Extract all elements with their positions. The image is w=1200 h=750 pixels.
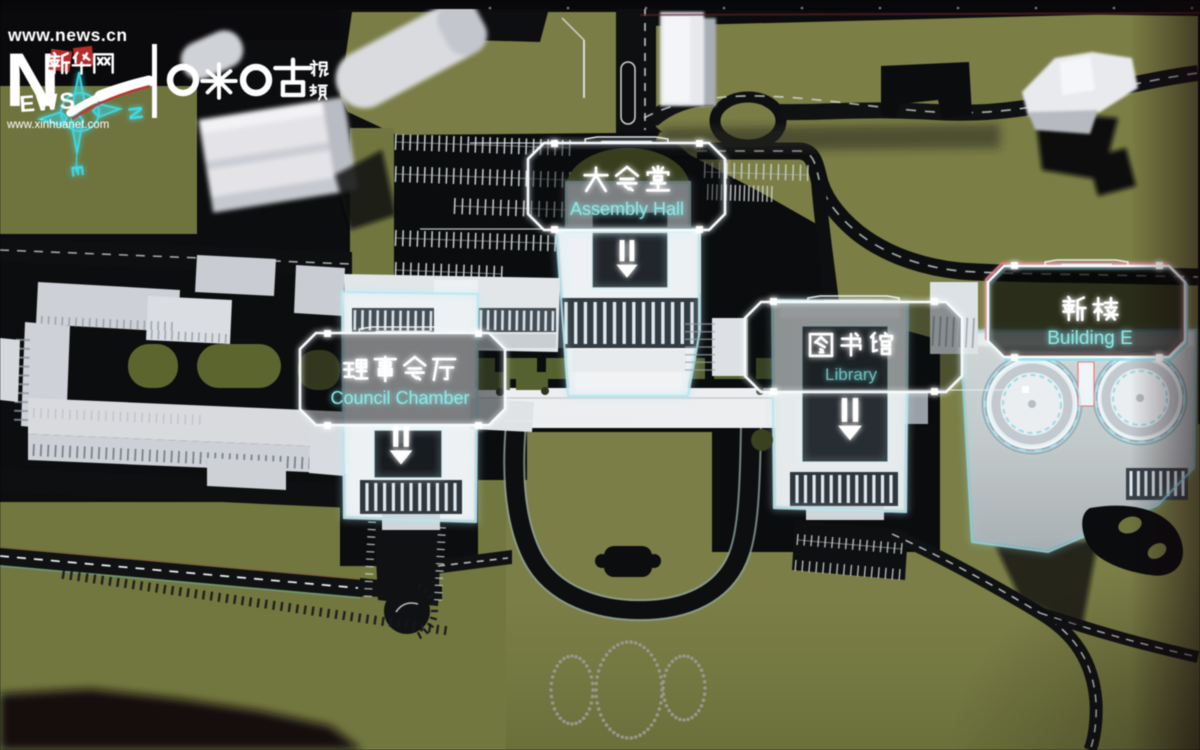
svg-text:N: N (123, 105, 146, 121)
svg-text:Council Chamber: Council Chamber (330, 388, 469, 408)
svg-text:Library: Library (825, 365, 877, 384)
svg-text:E: E (67, 164, 87, 178)
svg-text:Building E: Building E (1047, 328, 1133, 349)
svg-text:Assembly Hall: Assembly Hall (570, 199, 684, 219)
svg-text:www.xinhuanet.com: www.xinhuanet.com (6, 119, 109, 131)
